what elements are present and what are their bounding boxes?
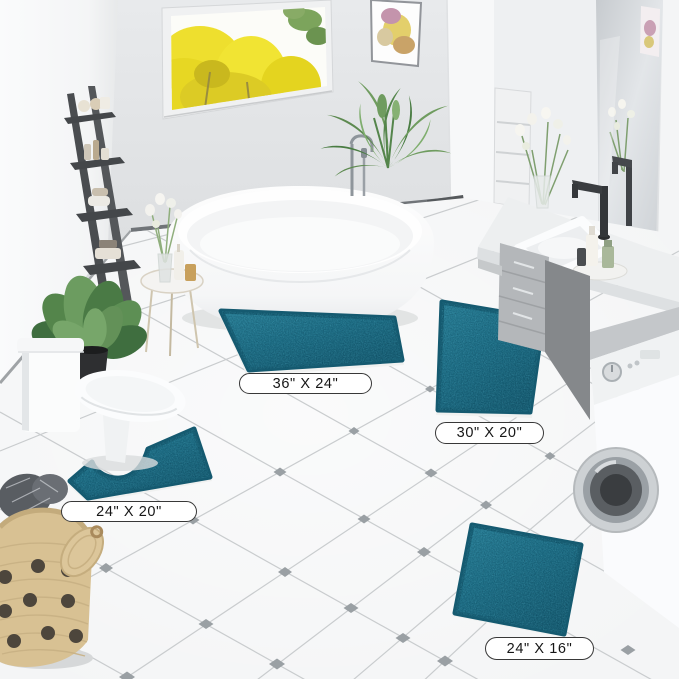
size-label-24x20: 24" X 20" xyxy=(61,501,197,522)
freestanding-bathtub xyxy=(166,186,434,333)
size-label-30x20: 30" X 20" xyxy=(435,422,544,444)
washer-door xyxy=(574,448,658,532)
wall-art-print xyxy=(371,0,421,66)
table-pump-bottle xyxy=(174,250,184,280)
table-jar xyxy=(185,264,196,281)
size-label-24x16: 24" X 16" xyxy=(485,637,594,660)
bathroom-product-photo: 36" X 24" 30" X 20" 24" X 20" 24" X 16" xyxy=(0,0,679,679)
size-label-36x24: 36" X 24" xyxy=(239,373,372,394)
bathroom-scene-illustration xyxy=(0,0,679,679)
